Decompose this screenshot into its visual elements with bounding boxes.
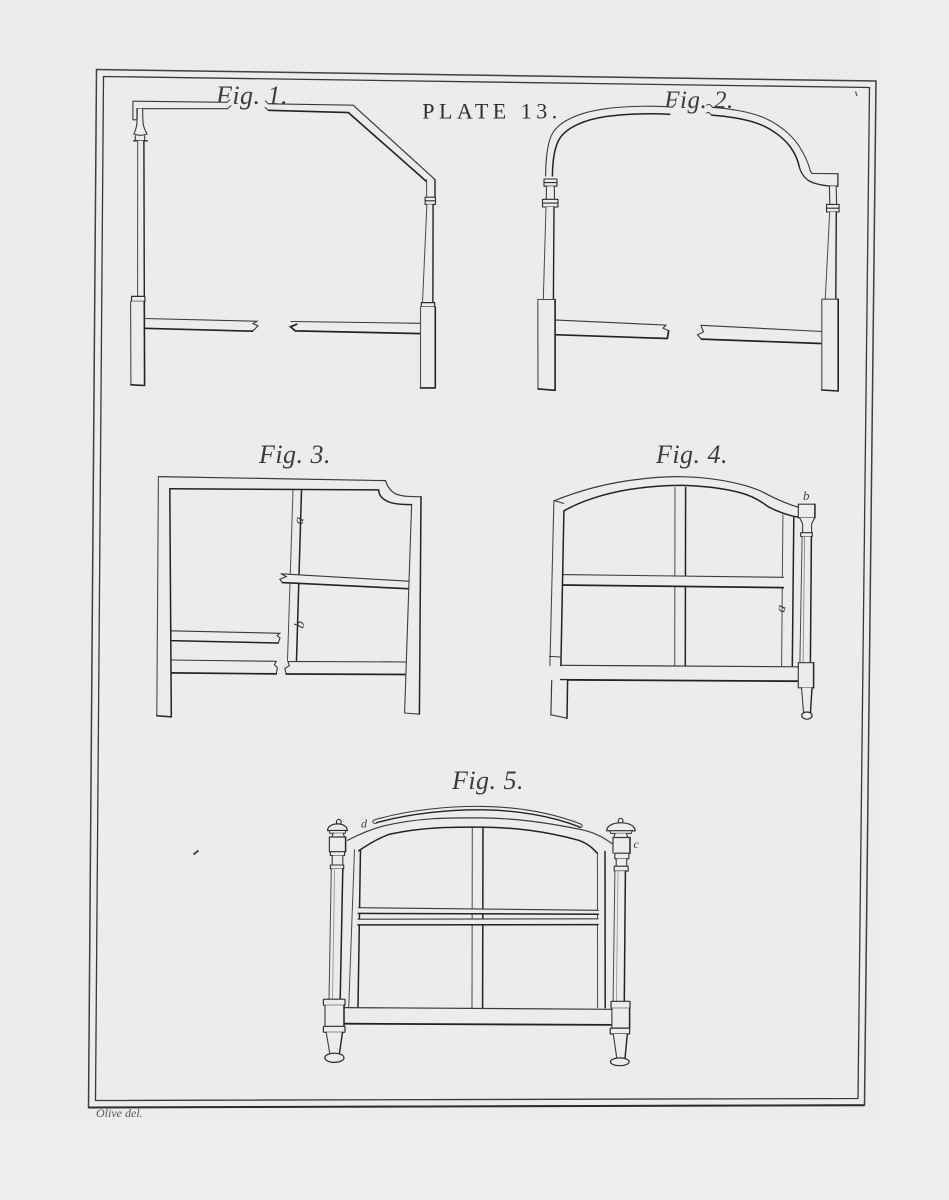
svg-text:c: c — [634, 837, 640, 851]
svg-text:PLATE 13.: PLATE 13. — [422, 99, 562, 124]
svg-text:b: b — [803, 488, 810, 503]
svg-text:d: d — [361, 817, 368, 831]
svg-text:Fig. 3.: Fig. 3. — [258, 440, 331, 469]
svg-text:Olive del.: Olive del. — [96, 1106, 143, 1120]
svg-text:Fig. 5.: Fig. 5. — [451, 766, 524, 795]
svg-text:Fig. 4.: Fig. 4. — [655, 440, 728, 469]
